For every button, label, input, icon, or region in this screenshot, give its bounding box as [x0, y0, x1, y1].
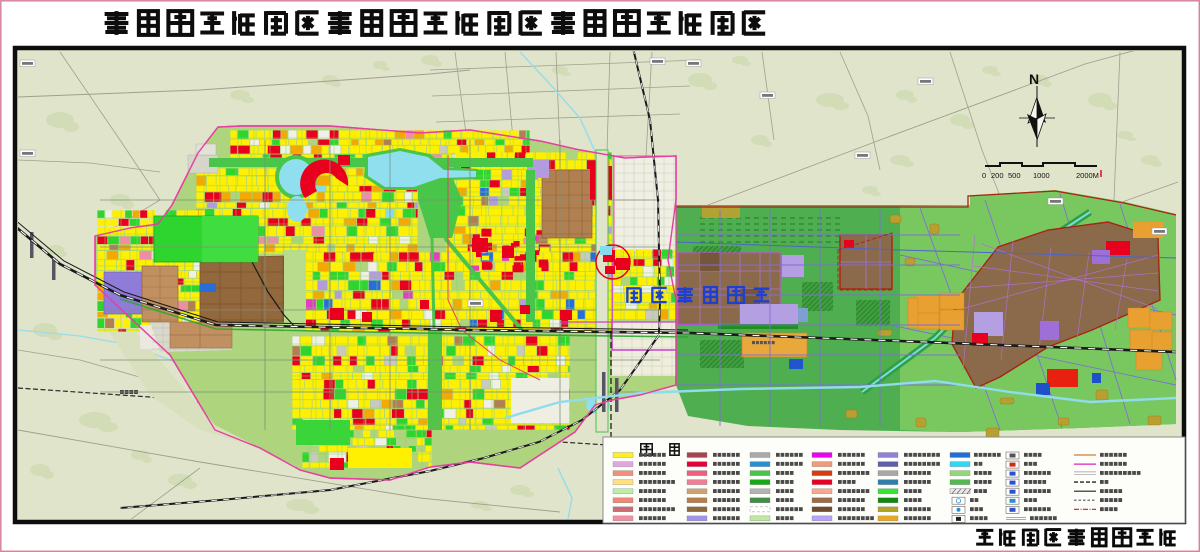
svg-text:0: 0: [982, 171, 986, 180]
svg-text:200: 200: [991, 171, 1004, 180]
svg-text:1000: 1000: [1033, 171, 1050, 180]
svg-text:2000M: 2000M: [1076, 171, 1099, 180]
svg-text:500: 500: [1008, 171, 1021, 180]
svg-text:N: N: [1029, 71, 1039, 87]
